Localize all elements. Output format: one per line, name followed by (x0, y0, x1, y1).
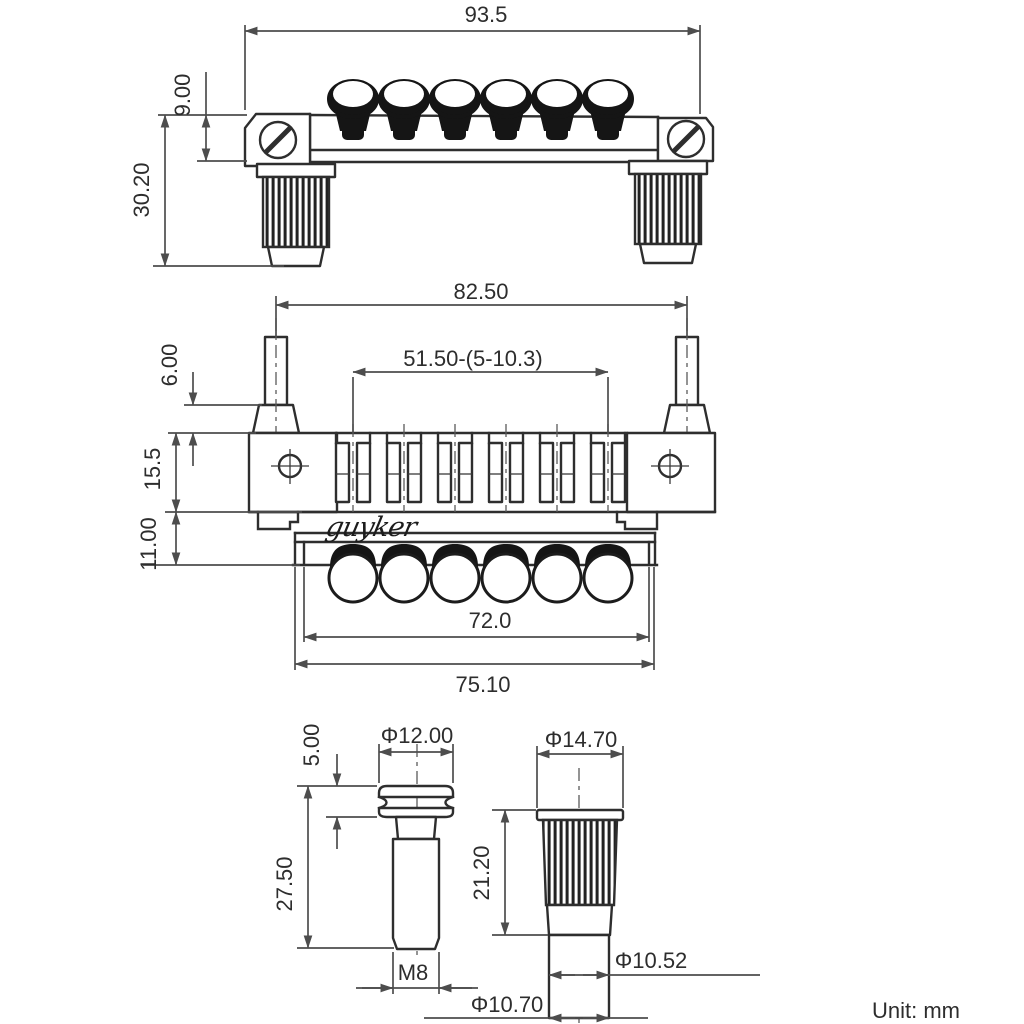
brand-logo: guyker (323, 512, 422, 543)
dim-label-body-height: 15.5 (140, 448, 165, 491)
dim-label-base-width: 75.10 (455, 672, 510, 697)
dim-label-bushing-outer-diameter: Φ10.70 (471, 992, 544, 1017)
technical-drawing-page: 93.5 9.00 30.20 (0, 0, 1024, 1024)
dim-label-stud-length: 27.50 (272, 856, 297, 911)
dim-stud-head-diameter: Φ12.00 (379, 723, 453, 783)
stud-detail: Φ12.00 5.00 27.50 M8 (272, 723, 478, 994)
right-bushing-front (629, 161, 707, 263)
left-bushing-front (257, 164, 335, 266)
dim-label-stud-head-diameter: Φ12.00 (381, 723, 454, 748)
dim-label-post-top: 6.00 (157, 344, 182, 387)
bottom-view: guyker 82.50 51.50-(5-10.3) 6.00 15. (136, 279, 715, 697)
dim-base-height: 11.00 (136, 512, 300, 571)
dim-bushing-length: 21.20 (469, 810, 548, 935)
front-view: 93.5 9.00 30.20 (129, 2, 713, 266)
dim-post-spacing: 82.50 (276, 279, 687, 336)
dim-post-top: 6.00 (157, 344, 262, 466)
string-ball-row (329, 544, 632, 602)
dim-bushing-head-diameter: Φ14.70 (537, 727, 623, 808)
left-foot (258, 512, 298, 529)
dim-label-base-height: 11.00 (136, 517, 161, 570)
dim-bushing-outer-diameter: Φ10.70 (424, 992, 648, 1018)
dim-label-front-width: 93.5 (465, 2, 508, 27)
dim-label-saddle-range: 51.50-(5-10.3) (403, 346, 542, 371)
bushing-detail: Φ14.70 21.20 Φ10.52 Φ10.70 (424, 727, 760, 1023)
dim-stud-length: 27.50 (272, 786, 394, 948)
dim-label-front-rail-height: 9.00 (170, 74, 195, 117)
unit-note: Unit: mm (872, 998, 960, 1023)
dim-label-post-spacing: 82.50 (453, 279, 508, 304)
dim-saddle-range: 51.50-(5-10.3) (353, 346, 608, 432)
dim-label-bushing-head-diameter: Φ14.70 (545, 727, 618, 752)
dim-stud-thread: M8 (356, 952, 478, 994)
bridge-technical-drawing: 93.5 9.00 30.20 (0, 0, 1024, 1024)
dim-label-bushing-inner-diameter: Φ10.52 (615, 948, 688, 973)
dim-label-stud-collar-height: 5.00 (299, 724, 324, 767)
right-foot (617, 512, 657, 529)
dim-front-rail-height: 9.00 (158, 72, 247, 161)
saddle-row-front (329, 81, 632, 140)
dim-label-plate-width: 72.0 (469, 608, 512, 633)
right-screw-housing (658, 118, 713, 161)
dim-label-front-overall-height: 30.20 (129, 162, 154, 217)
saddle-slots (336, 424, 625, 512)
left-screw-housing (245, 114, 310, 166)
dim-label-bushing-length: 21.20 (469, 845, 494, 900)
dim-label-stud-thread: M8 (398, 960, 429, 985)
